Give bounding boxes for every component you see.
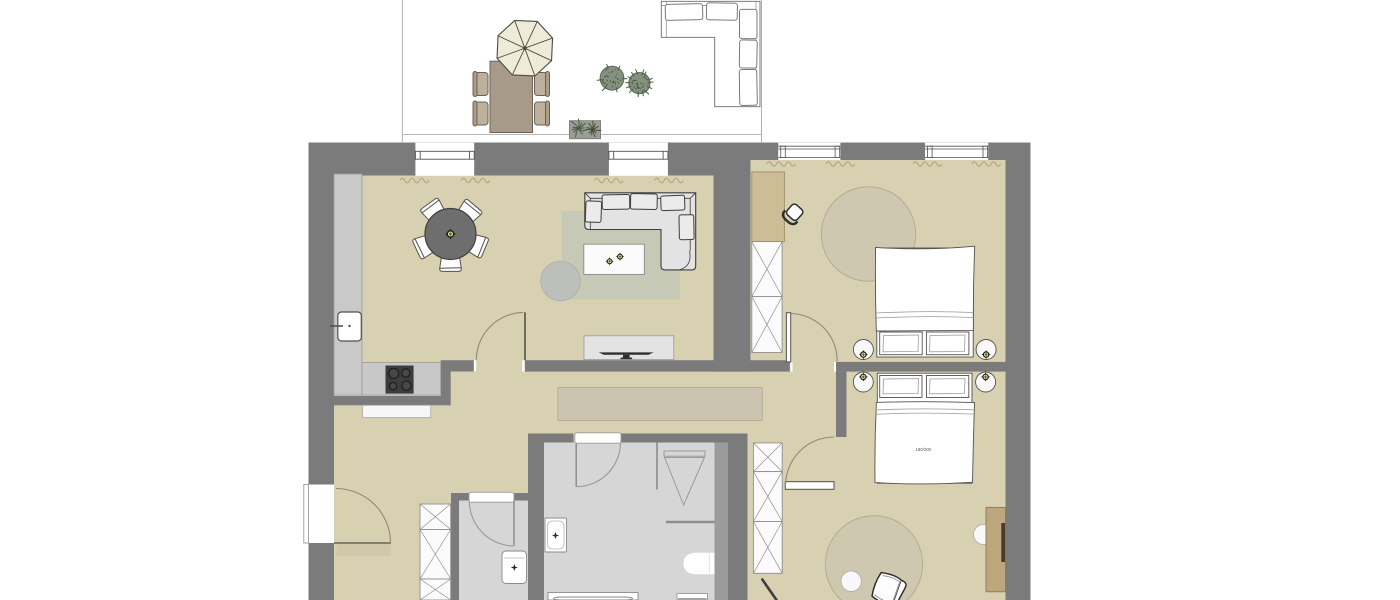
svg-text:180/200: 180/200 [916,447,932,452]
